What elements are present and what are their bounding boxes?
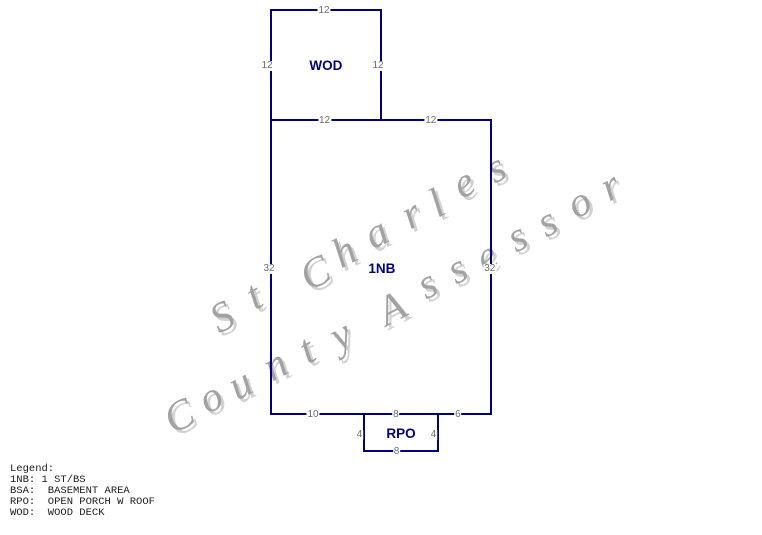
svg-text:s: s xyxy=(499,213,535,261)
svg-text:s: s xyxy=(529,198,565,246)
svg-text:o: o xyxy=(559,178,599,228)
svg-text:S: S xyxy=(203,292,243,342)
svg-text:t: t xyxy=(238,272,271,319)
svg-text:o: o xyxy=(191,373,231,423)
